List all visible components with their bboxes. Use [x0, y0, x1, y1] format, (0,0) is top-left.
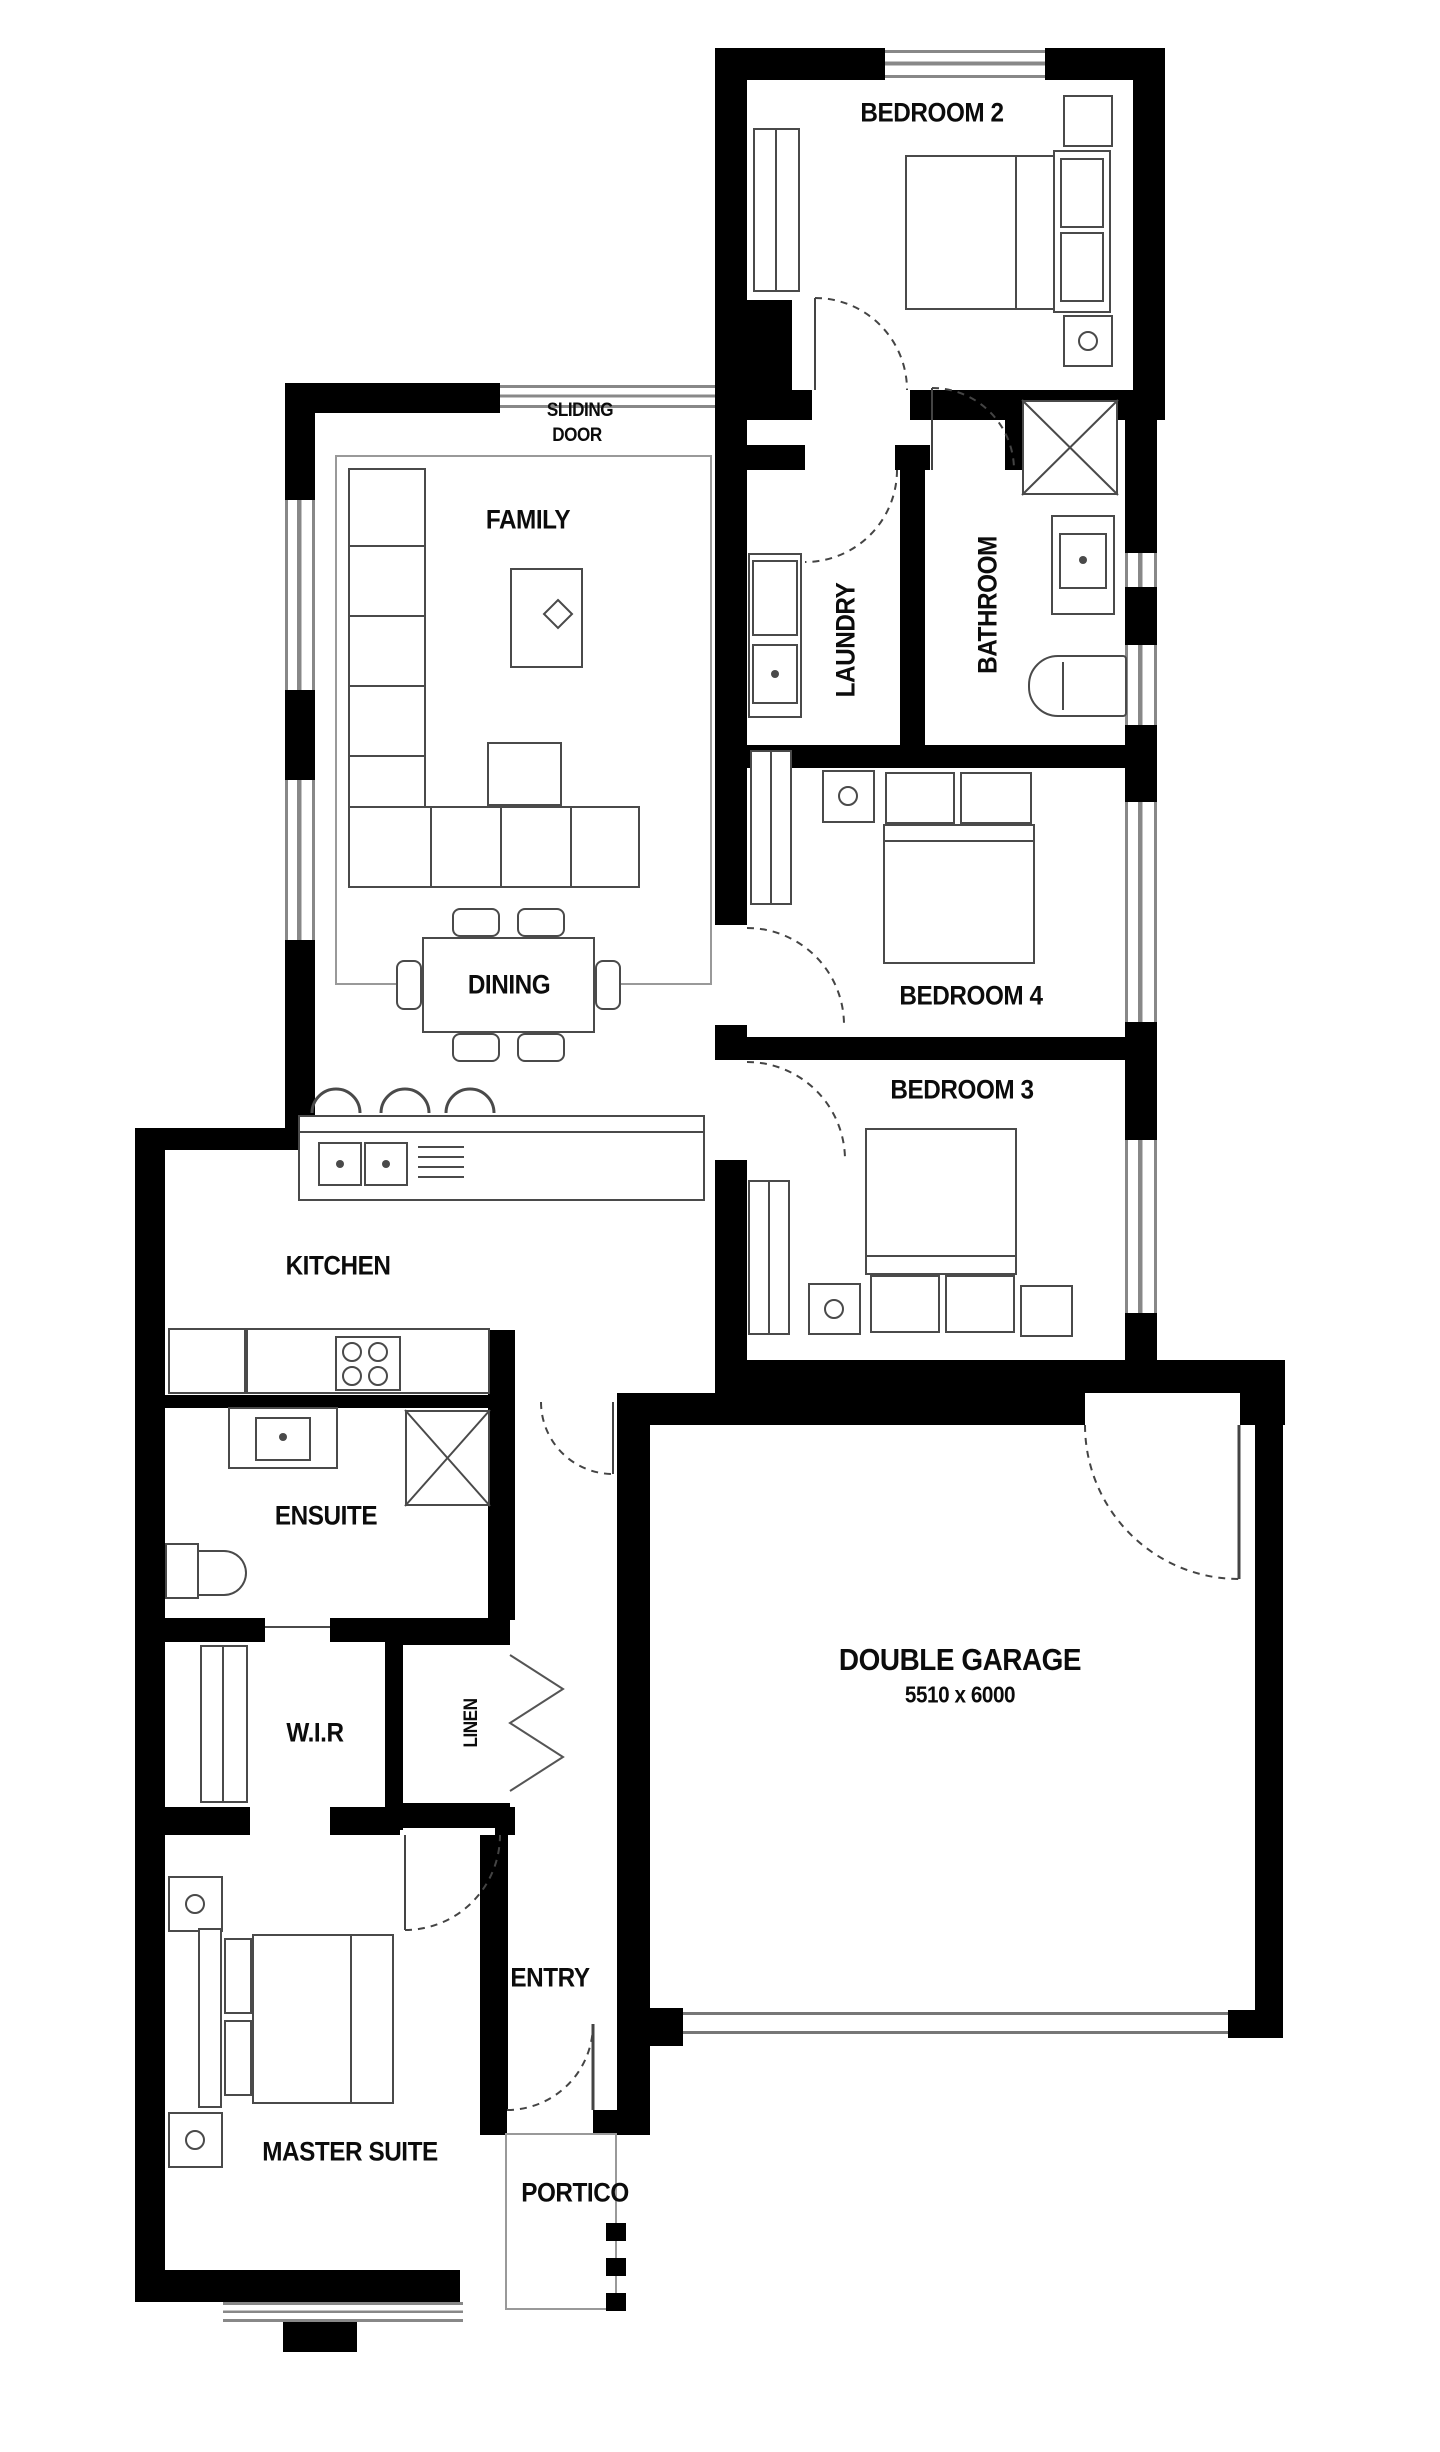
door-arc: [932, 388, 1014, 470]
burner-icon: [369, 1367, 387, 1385]
door-arc: [1085, 1425, 1239, 1579]
room-label-bedroom-4: BEDROOM 4: [899, 981, 1042, 1012]
room-label-bedroom-2: BEDROOM 2: [860, 98, 1003, 129]
room-label-wir: W.I.R: [286, 1718, 343, 1749]
burner-icon: [343, 1367, 361, 1385]
room-label-double-garage: DOUBLE GARAGE: [839, 1642, 1081, 1678]
lamp-icon: [186, 2131, 204, 2149]
sink-drain-dot: [382, 1160, 390, 1168]
door-arc: [507, 2024, 593, 2110]
stool-arc: [312, 1089, 360, 1113]
room-label-linen: LINEN: [461, 1698, 483, 1747]
sliding-door-label-line2: DOOR: [552, 425, 602, 447]
lamp-icon: [1079, 332, 1097, 350]
room-label-bathroom: BATHROOM: [973, 536, 1004, 674]
doors-and-details-overlay: [0, 0, 1440, 2452]
lamp-icon: [825, 1300, 843, 1318]
door-arc: [747, 928, 844, 1025]
room-label-portico: PORTICO: [521, 2178, 629, 2209]
room-label-ensuite: ENSUITE: [275, 1501, 377, 1532]
burner-icon: [343, 1343, 361, 1361]
sliding-door-label-line1: SLIDING: [547, 400, 613, 422]
room-label-entry: ENTRY: [510, 1963, 589, 1994]
door-arc: [541, 1402, 613, 1474]
stool-arc: [381, 1089, 429, 1113]
room-label-family: FAMILY: [486, 505, 570, 536]
room-label-dining: DINING: [468, 970, 550, 1001]
room-label-laundry: LAUNDRY: [831, 583, 862, 698]
door-arc: [815, 298, 907, 390]
linen-bifold-door: [510, 1655, 563, 1791]
burner-icon: [369, 1343, 387, 1361]
decor-item: [544, 600, 572, 628]
door-arc: [805, 470, 897, 562]
sink-drain-dot: [336, 1160, 344, 1168]
door-arc: [747, 1062, 845, 1160]
stool-arc: [446, 1089, 494, 1113]
room-label-kitchen: KITCHEN: [286, 1251, 391, 1282]
sink-drain-dot: [771, 670, 779, 678]
floor-plan: BEDROOM 2 SLIDING DOOR FAMILY LAUNDRY BA…: [0, 0, 1440, 2452]
lamp-icon: [839, 787, 857, 805]
room-label-master-suite: MASTER SUITE: [262, 2137, 438, 2168]
room-label-bedroom-3: BEDROOM 3: [890, 1075, 1033, 1106]
door-arc: [405, 1835, 500, 1930]
garage-dimensions: 5510 x 6000: [905, 1682, 1015, 1709]
sink-drain-dot: [279, 1433, 287, 1441]
sink-drain-dot: [1079, 556, 1087, 564]
lamp-icon: [186, 1895, 204, 1913]
